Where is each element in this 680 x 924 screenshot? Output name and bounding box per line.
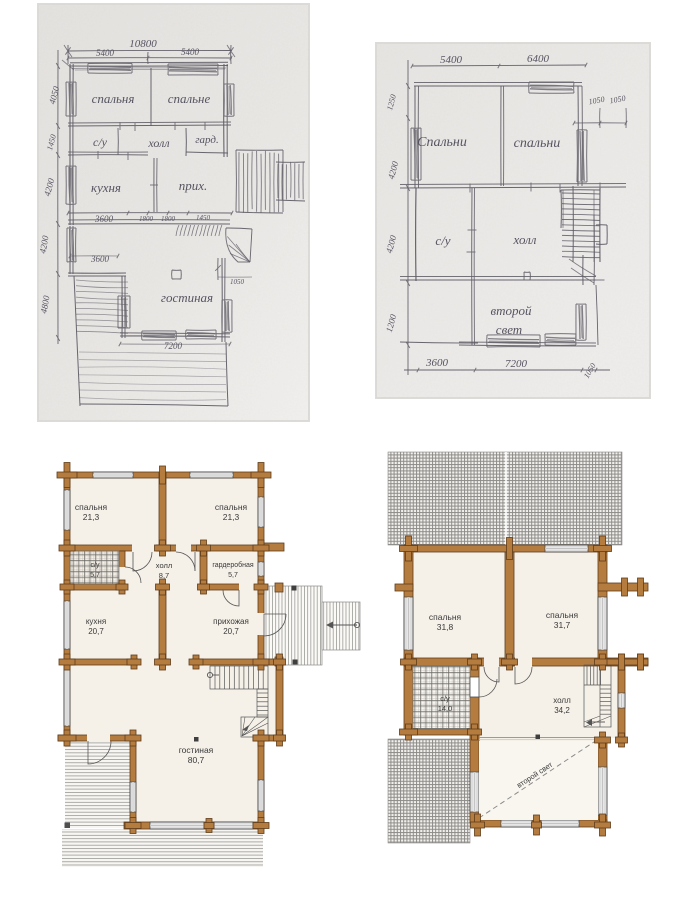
svg-text:5400: 5400 xyxy=(181,47,200,57)
svg-text:с/у: с/у xyxy=(435,233,450,248)
svg-text:спальня: спальня xyxy=(75,502,108,512)
svg-text:7200: 7200 xyxy=(164,341,183,351)
svg-text:5400: 5400 xyxy=(440,54,463,66)
svg-text:с/у: с/у xyxy=(440,694,450,703)
svg-text:1800: 1800 xyxy=(161,215,176,223)
svg-text:7200: 7200 xyxy=(505,358,528,370)
svg-text:5,7: 5,7 xyxy=(228,572,238,579)
svg-text:31,7: 31,7 xyxy=(554,620,571,630)
svg-text:5,7: 5,7 xyxy=(90,572,100,579)
svg-text:14,0: 14,0 xyxy=(438,704,453,713)
svg-text:холл: холл xyxy=(513,232,537,247)
svg-text:21,3: 21,3 xyxy=(83,512,100,522)
svg-text:спальня: спальня xyxy=(429,612,462,622)
svg-text:20,7: 20,7 xyxy=(223,627,239,636)
svg-text:80,7: 80,7 xyxy=(188,755,205,765)
svg-text:Спальни: Спальни xyxy=(417,135,467,150)
svg-text:34,2: 34,2 xyxy=(554,706,570,715)
svg-text:второй: второй xyxy=(490,303,532,318)
svg-text:1800: 1800 xyxy=(139,215,154,223)
svg-text:1450: 1450 xyxy=(196,214,211,222)
svg-text:31,8: 31,8 xyxy=(437,622,454,632)
svg-text:холл: холл xyxy=(156,561,172,570)
svg-text:3600: 3600 xyxy=(425,357,449,369)
svg-text:прих.: прих. xyxy=(179,178,208,193)
svg-text:с/у: с/у xyxy=(93,135,108,149)
svg-text:спальни: спальни xyxy=(514,136,561,151)
svg-text:кухня: кухня xyxy=(91,180,121,195)
svg-text:5400: 5400 xyxy=(96,48,115,58)
svg-text:гостиная: гостиная xyxy=(161,290,213,305)
svg-text:холл: холл xyxy=(553,696,571,705)
svg-text:спальня: спальня xyxy=(546,610,579,620)
svg-text:8,7: 8,7 xyxy=(159,571,169,580)
svg-text:спальня: спальня xyxy=(215,502,248,512)
svg-text:21,3: 21,3 xyxy=(223,512,240,522)
svg-text:20,7: 20,7 xyxy=(88,627,104,636)
svg-text:гостиная: гостиная xyxy=(179,745,214,755)
svg-text:спальня: спальня xyxy=(92,91,135,106)
svg-text:10800: 10800 xyxy=(129,38,157,50)
svg-text:6400: 6400 xyxy=(527,53,550,65)
svg-text:холл: холл xyxy=(147,136,169,150)
svg-text:прихожая: прихожая xyxy=(213,617,249,626)
svg-text:гардеробная: гардеробная xyxy=(212,561,254,569)
svg-text:спальне: спальне xyxy=(168,91,211,106)
svg-text:кухня: кухня xyxy=(86,617,106,626)
svg-text:1050: 1050 xyxy=(230,278,245,286)
svg-text:с/у: с/у xyxy=(91,562,100,569)
svg-text:гард.: гард. xyxy=(195,134,218,146)
svg-text:3600: 3600 xyxy=(94,214,114,224)
